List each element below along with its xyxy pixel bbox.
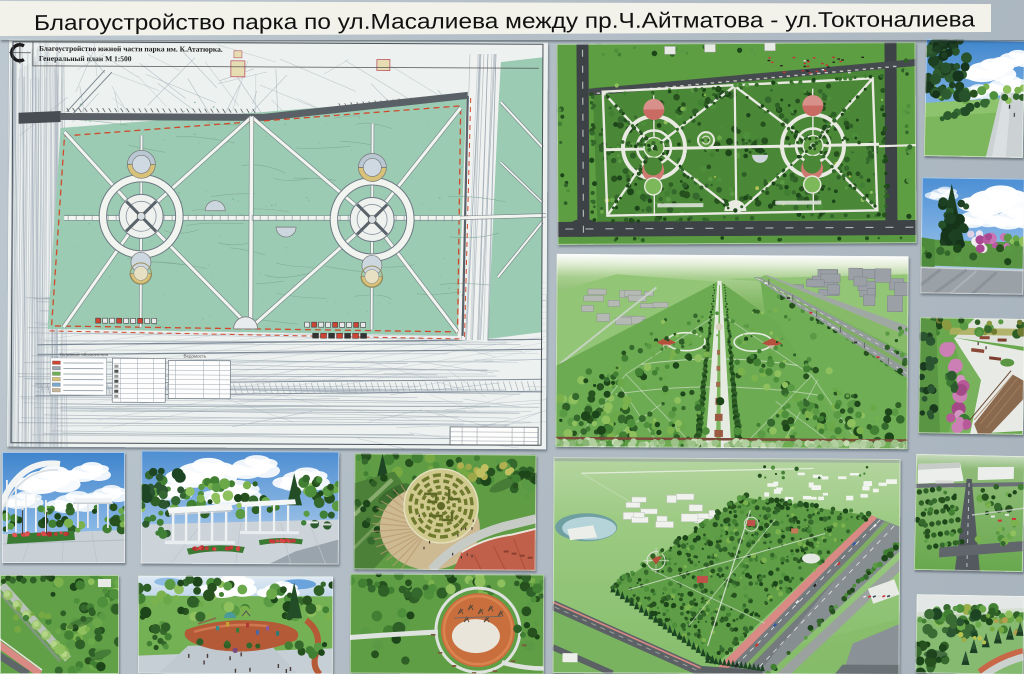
svg-text:Условные обозначения: Условные обозначения: [59, 352, 108, 357]
svg-text:Ведомость: Ведомость: [183, 354, 206, 359]
svg-text:Генеральный план М 1:500: Генеральный план М 1:500: [39, 54, 132, 63]
svg-text:Благоустройство южной части па: Благоустройство южной части парка им. К.…: [39, 44, 223, 54]
svg-text:Благоустройство парка по ул.Ма: Благоустройство парка по ул.Масалиева ме…: [34, 7, 975, 35]
